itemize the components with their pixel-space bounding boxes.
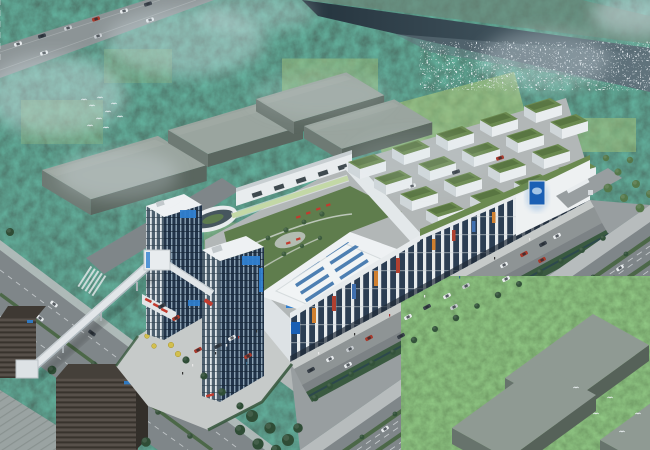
guard-booth (588, 190, 593, 195)
office-tower-2 (202, 236, 264, 402)
tower1-sign (180, 210, 196, 218)
aerial-rendering-image (0, 0, 650, 450)
skybridge-entrance (16, 360, 38, 378)
tower1-base-sign (188, 300, 200, 306)
tower1-southwest-face (146, 206, 164, 340)
tower2-southeast-face (220, 247, 264, 402)
mall-corner-sign (291, 322, 300, 334)
billboard-graphic (532, 188, 542, 195)
tower2-sign (242, 256, 260, 265)
tower2-vertical-sign (259, 268, 263, 292)
aerial-rendering: Bird's-eye dusk rendering of a riverside… (0, 0, 650, 450)
